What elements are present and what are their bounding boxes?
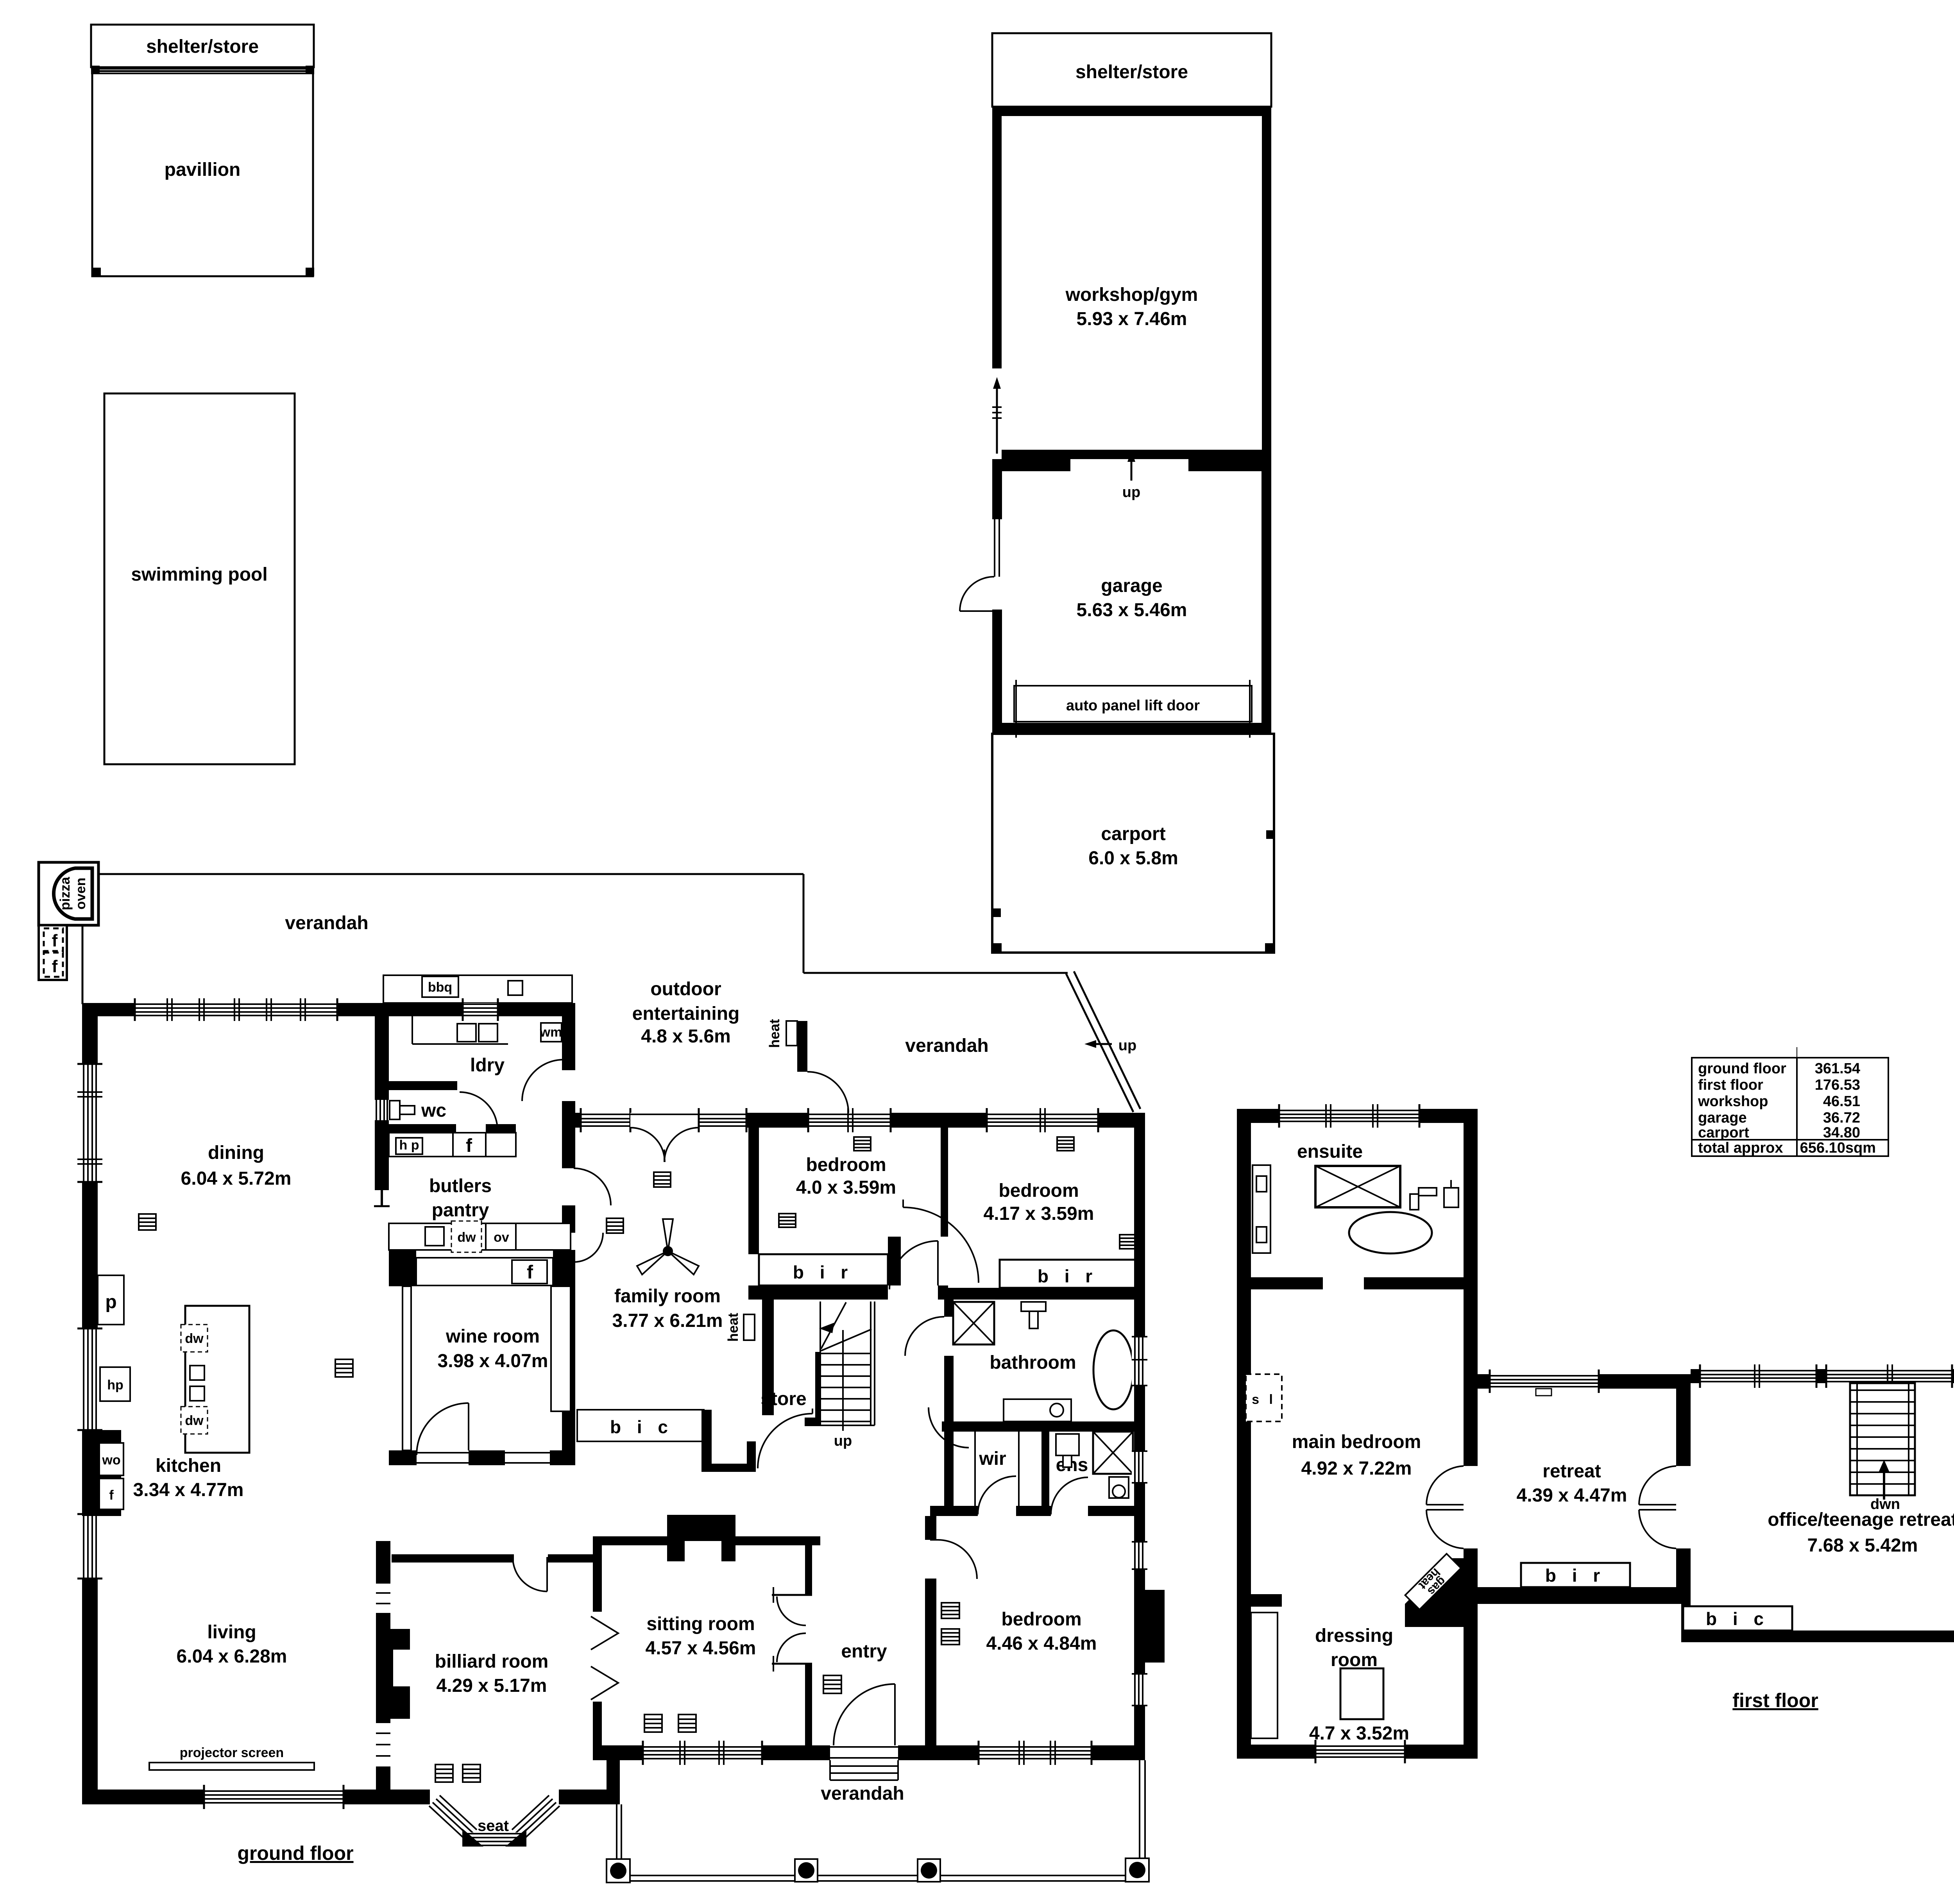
svg-text:retreat: retreat — [1542, 1461, 1601, 1482]
svg-text:living: living — [207, 1622, 256, 1643]
svg-text:up: up — [1122, 484, 1140, 501]
svg-text:6.04 x 6.28m: 6.04 x 6.28m — [177, 1646, 287, 1667]
svg-text:oven: oven — [73, 878, 88, 910]
svg-text:entry: entry — [841, 1641, 887, 1662]
svg-text:dining: dining — [208, 1142, 264, 1163]
svg-text:up: up — [834, 1433, 852, 1449]
svg-text:b i c: b i c — [1706, 1609, 1769, 1629]
svg-text:office/teenage retreat: office/teenage retreat — [1768, 1509, 1954, 1530]
svg-text:entertaining: entertaining — [632, 1003, 740, 1024]
svg-text:f: f — [109, 1488, 114, 1503]
svg-text:first floor: first floor — [1698, 1077, 1763, 1093]
svg-text:6.04 x 5.72m: 6.04 x 5.72m — [181, 1168, 292, 1189]
svg-text:auto panel lift door: auto panel lift door — [1066, 697, 1200, 714]
svg-text:first floor: first floor — [1732, 1689, 1818, 1711]
svg-text:pantry: pantry — [432, 1200, 489, 1221]
svg-text:bedroom: bedroom — [806, 1155, 886, 1175]
svg-text:6.0 x 5.8m: 6.0 x 5.8m — [1088, 848, 1178, 869]
svg-text:heat: heat — [766, 1019, 782, 1048]
svg-text:projector screen: projector screen — [180, 1745, 284, 1760]
svg-text:workshop: workshop — [1698, 1093, 1768, 1110]
svg-text:4.46 x 4.84m: 4.46 x 4.84m — [986, 1633, 1097, 1654]
svg-text:workshop/gym: workshop/gym — [1065, 284, 1198, 305]
svg-text:f: f — [527, 1262, 533, 1283]
svg-text:bathroom: bathroom — [990, 1352, 1076, 1373]
svg-text:5.63 x 5.46m: 5.63 x 5.46m — [1077, 600, 1187, 620]
svg-text:ensuite: ensuite — [1297, 1141, 1363, 1162]
svg-text:dw: dw — [457, 1230, 476, 1245]
svg-text:3.34 x 4.77m: 3.34 x 4.77m — [133, 1480, 244, 1500]
svg-text:family room: family room — [614, 1286, 721, 1307]
svg-text:wc: wc — [421, 1100, 446, 1121]
svg-text:dw: dw — [185, 1413, 204, 1428]
svg-text:wine room: wine room — [446, 1326, 540, 1347]
svg-text:garage: garage — [1698, 1110, 1747, 1126]
svg-text:wm: wm — [540, 1025, 562, 1040]
svg-text:b i r: b i r — [1038, 1266, 1098, 1286]
svg-text:pizza: pizza — [57, 877, 73, 910]
svg-text:room: room — [1331, 1650, 1378, 1670]
svg-text:656.10sqm: 656.10sqm — [1800, 1140, 1876, 1156]
svg-text:bbq: bbq — [428, 980, 452, 995]
svg-text:4.8 x 5.6m: 4.8 x 5.6m — [641, 1026, 731, 1047]
svg-text:sitting room: sitting room — [646, 1614, 755, 1634]
svg-text:wo: wo — [102, 1453, 120, 1468]
svg-text:ldry: ldry — [470, 1055, 505, 1076]
svg-text:pavillion: pavillion — [165, 159, 241, 180]
svg-text:4.39 x 4.47m: 4.39 x 4.47m — [1517, 1485, 1627, 1506]
svg-text:4.92 x 7.22m: 4.92 x 7.22m — [1301, 1458, 1412, 1479]
svg-text:b i r: b i r — [1545, 1565, 1605, 1586]
svg-text:36.72: 36.72 — [1823, 1110, 1860, 1126]
svg-text:verandah: verandah — [821, 1783, 904, 1804]
svg-text:carport: carport — [1101, 824, 1165, 844]
svg-text:bedroom: bedroom — [998, 1180, 1079, 1201]
svg-text:seat: seat — [478, 1817, 509, 1834]
svg-text:f: f — [466, 1135, 472, 1156]
svg-text:4.7 x 3.52m: 4.7 x 3.52m — [1309, 1723, 1409, 1744]
svg-text:verandah: verandah — [285, 913, 368, 933]
svg-text:f: f — [52, 957, 58, 976]
svg-text:heat: heat — [725, 1313, 741, 1342]
svg-text:361.54: 361.54 — [1815, 1060, 1860, 1077]
svg-text:3.98 x 4.07m: 3.98 x 4.07m — [438, 1351, 548, 1371]
svg-text:wir: wir — [979, 1448, 1006, 1469]
svg-text:bedroom: bedroom — [1001, 1609, 1081, 1630]
svg-text:dressing: dressing — [1315, 1625, 1393, 1646]
svg-text:up: up — [1118, 1037, 1136, 1054]
svg-text:swimming pool: swimming pool — [131, 564, 267, 585]
svg-text:4.17 x 3.59m: 4.17 x 3.59m — [984, 1203, 1094, 1224]
svg-text:7.68 x 5.42m: 7.68 x 5.42m — [1807, 1535, 1918, 1556]
svg-text:outdoor: outdoor — [650, 979, 721, 999]
svg-text:46.51: 46.51 — [1823, 1093, 1860, 1110]
svg-text:dw: dw — [185, 1331, 204, 1346]
svg-text:main bedroom: main bedroom — [1292, 1432, 1421, 1452]
svg-text:f: f — [52, 931, 58, 950]
svg-text:butlers: butlers — [429, 1176, 492, 1196]
svg-text:b i c: b i c — [610, 1417, 673, 1437]
svg-text:billiard room: billiard room — [435, 1651, 549, 1672]
svg-text:verandah: verandah — [905, 1035, 988, 1056]
svg-text:garage: garage — [1101, 576, 1162, 596]
svg-text:shelter/store: shelter/store — [1075, 62, 1188, 82]
svg-text:shelter/store: shelter/store — [146, 36, 259, 57]
svg-text:ground floor: ground floor — [237, 1842, 353, 1864]
svg-text:3.77 x 6.21m: 3.77 x 6.21m — [612, 1310, 723, 1331]
svg-text:34.80: 34.80 — [1823, 1125, 1860, 1141]
svg-text:b i r: b i r — [793, 1262, 853, 1282]
svg-text:store: store — [760, 1389, 806, 1409]
svg-text:s l: s l — [1252, 1392, 1276, 1407]
svg-text:carport: carport — [1698, 1125, 1749, 1141]
svg-text:4.29 x 5.17m: 4.29 x 5.17m — [437, 1675, 547, 1696]
svg-text:4.57 x 4.56m: 4.57 x 4.56m — [646, 1638, 756, 1659]
svg-text:h p: h p — [399, 1138, 419, 1153]
svg-text:ground floor: ground floor — [1698, 1060, 1786, 1077]
svg-text:4.0 x 3.59m: 4.0 x 3.59m — [796, 1177, 896, 1198]
svg-text:p: p — [105, 1292, 116, 1312]
svg-text:5.93 x 7.46m: 5.93 x 7.46m — [1077, 309, 1187, 329]
svg-text:hp: hp — [107, 1378, 123, 1393]
svg-text:kitchen: kitchen — [156, 1455, 221, 1476]
svg-text:total approx: total approx — [1698, 1140, 1783, 1156]
svg-text:ov: ov — [494, 1230, 509, 1245]
svg-text:176.53: 176.53 — [1815, 1077, 1860, 1093]
